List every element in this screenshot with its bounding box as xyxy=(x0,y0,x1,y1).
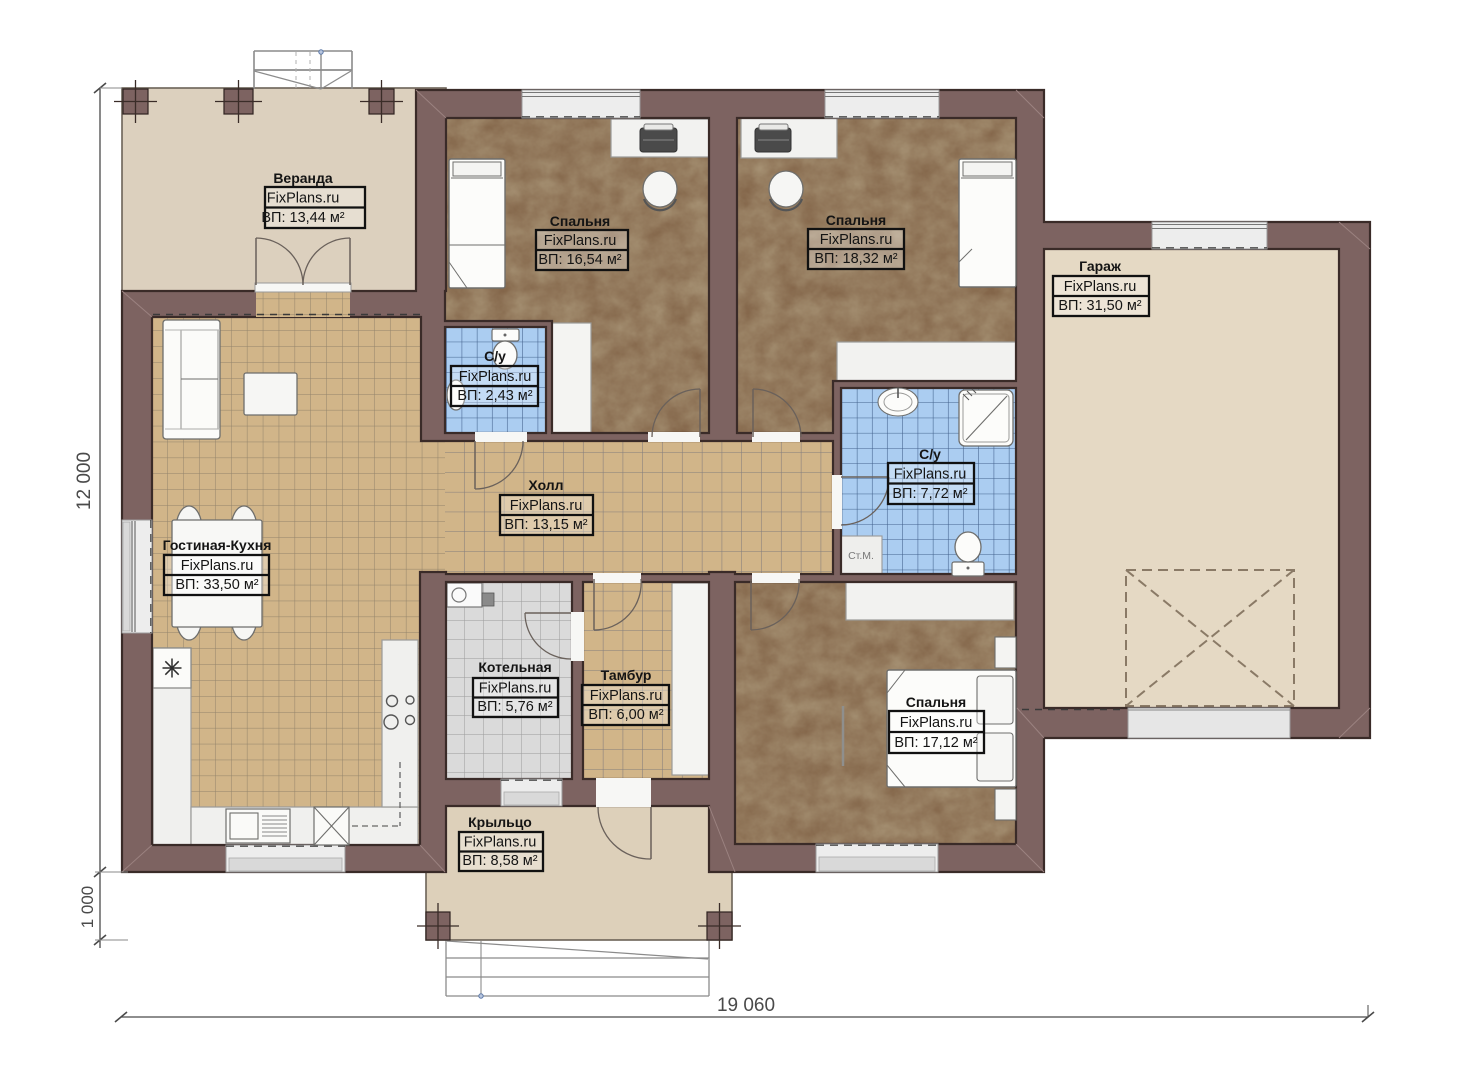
svg-text:ВП: 31,50 м²: ВП: 31,50 м² xyxy=(1058,298,1141,314)
svg-text:Ст.М.: Ст.М. xyxy=(848,550,874,562)
svg-text:ВП: 33,50 м²: ВП: 33,50 м² xyxy=(175,577,258,593)
svg-text:ВП: 13,44 м²: ВП: 13,44 м² xyxy=(261,210,344,226)
svg-text:19 060: 19 060 xyxy=(717,995,775,1016)
svg-text:FixPlans.ru: FixPlans.ru xyxy=(464,835,537,851)
svg-text:FixPlans.ru: FixPlans.ru xyxy=(1064,279,1137,295)
svg-text:FixPlans.ru: FixPlans.ru xyxy=(820,232,893,248)
svg-text:Крыльцо: Крыльцо xyxy=(468,814,532,830)
svg-text:Спальня: Спальня xyxy=(906,694,966,710)
svg-text:ВП: 5,76 м²: ВП: 5,76 м² xyxy=(477,699,552,715)
svg-text:ВП: 18,32 м²: ВП: 18,32 м² xyxy=(814,251,897,267)
svg-text:Гостиная-Кухня: Гостиная-Кухня xyxy=(163,537,272,553)
svg-text:ВП: 8,58 м²: ВП: 8,58 м² xyxy=(462,853,537,869)
svg-text:FixPlans.ru: FixPlans.ru xyxy=(894,467,967,483)
svg-text:С/у: С/у xyxy=(484,348,506,364)
svg-text:Веранда: Веранда xyxy=(273,170,333,186)
svg-text:FixPlans.ru: FixPlans.ru xyxy=(900,715,973,731)
svg-text:ВП: 2,43 м²: ВП: 2,43 м² xyxy=(457,388,532,404)
svg-text:ВП: 7,72 м²: ВП: 7,72 м² xyxy=(892,486,967,502)
svg-text:12 000: 12 000 xyxy=(74,452,95,510)
svg-text:Тамбур: Тамбур xyxy=(601,667,652,683)
svg-text:FixPlans.ru: FixPlans.ru xyxy=(544,233,617,249)
svg-text:Котельная: Котельная xyxy=(478,659,551,675)
svg-text:Гараж: Гараж xyxy=(1079,258,1122,274)
svg-text:С/у: С/у xyxy=(919,446,941,462)
svg-text:ВП: 6,00 м²: ВП: 6,00 м² xyxy=(588,707,663,723)
svg-text:FixPlans.ru: FixPlans.ru xyxy=(479,681,552,697)
svg-text:FixPlans.ru: FixPlans.ru xyxy=(510,498,583,514)
svg-text:Спальня: Спальня xyxy=(550,213,610,229)
svg-text:ВП: 16,54 м²: ВП: 16,54 м² xyxy=(538,252,621,268)
svg-text:FixPlans.ru: FixPlans.ru xyxy=(267,191,340,207)
svg-text:FixPlans.ru: FixPlans.ru xyxy=(181,558,254,574)
svg-text:Холл: Холл xyxy=(528,477,563,493)
svg-text:1 000: 1 000 xyxy=(78,886,97,929)
svg-text:ВП: 13,15 м²: ВП: 13,15 м² xyxy=(504,517,587,533)
svg-text:Спальня: Спальня xyxy=(826,212,886,228)
svg-text:FixPlans.ru: FixPlans.ru xyxy=(590,688,663,704)
svg-text:FixPlans.ru: FixPlans.ru xyxy=(459,369,532,385)
svg-text:ВП: 17,12 м²: ВП: 17,12 м² xyxy=(894,735,977,751)
